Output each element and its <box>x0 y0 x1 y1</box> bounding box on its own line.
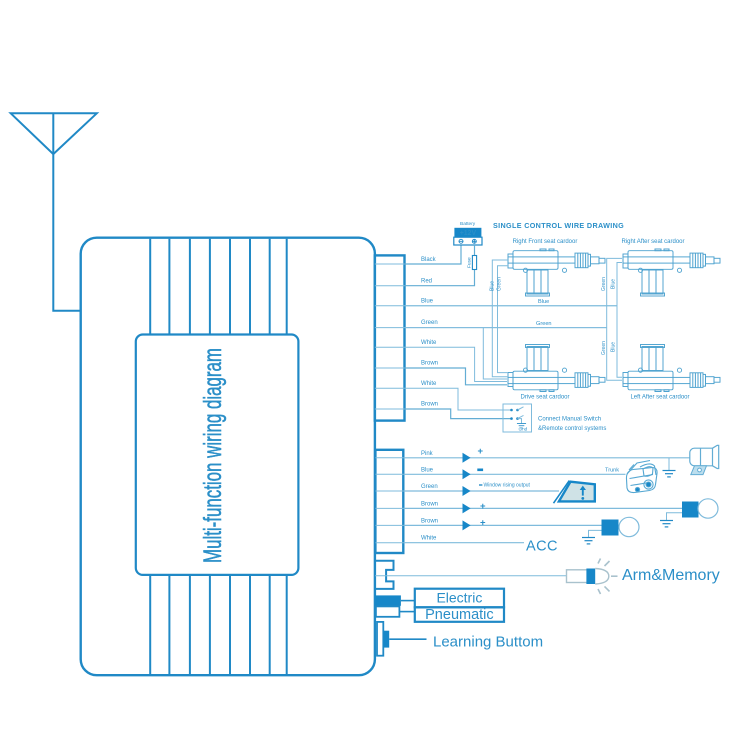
svg-text:Trunk: Trunk <box>605 468 619 474</box>
svg-text:Green: Green <box>421 484 438 490</box>
svg-text:Electric: Electric <box>436 590 482 606</box>
svg-text:Brown: Brown <box>421 502 438 508</box>
svg-text:Right Front seat cardoor: Right Front seat cardoor <box>513 239 578 245</box>
svg-text:Green: Green <box>536 321 552 327</box>
svg-text:Gnd: Gnd <box>519 426 528 431</box>
svg-text:Brown: Brown <box>421 361 438 367</box>
svg-text:Right After seat cardoor: Right After seat cardoor <box>621 239 684 245</box>
svg-text:Left After seat cardoor: Left After seat cardoor <box>630 395 689 401</box>
svg-text:Pneumatic: Pneumatic <box>425 607 494 623</box>
svg-text:Multi-function wiring diagram: Multi-function wiring diagram <box>199 348 227 563</box>
svg-text:Green: Green <box>497 277 503 291</box>
svg-text:Drive seat cardoor: Drive seat cardoor <box>520 395 569 401</box>
svg-text:+: + <box>480 518 486 529</box>
svg-text:Brown: Brown <box>421 402 438 408</box>
svg-text:+: + <box>480 501 486 512</box>
svg-text:Battery: Battery <box>460 221 476 227</box>
svg-text:Pink: Pink <box>421 451 434 457</box>
svg-text:SINGLE CONTROL WIRE DRAWING: SINGLE CONTROL WIRE DRAWING <box>493 221 624 230</box>
svg-text:Brown: Brown <box>421 519 438 525</box>
svg-text:Blue: Blue <box>421 468 434 474</box>
svg-text:Red: Red <box>421 279 432 285</box>
svg-text:White: White <box>421 340 437 346</box>
svg-text:Black: Black <box>421 257 437 263</box>
svg-text:+12V: +12V <box>460 230 477 237</box>
svg-text:Blue: Blue <box>611 279 617 289</box>
svg-text:+: + <box>478 446 484 457</box>
svg-text:Fuse: Fuse <box>466 257 472 268</box>
svg-text:ACC: ACC <box>526 539 558 555</box>
svg-text:Green: Green <box>421 320 438 326</box>
svg-text:Blue: Blue <box>538 299 549 305</box>
svg-text:Connect Manual Switch: Connect Manual Switch <box>538 417 601 423</box>
svg-text:Blue: Blue <box>421 299 434 305</box>
svg-text:Blue: Blue <box>611 342 617 352</box>
svg-text:White: White <box>421 536 437 542</box>
svg-text:Window rising output: Window rising output <box>484 483 531 489</box>
svg-text:Green: Green <box>601 277 607 291</box>
svg-text:Blue: Blue <box>490 281 496 291</box>
svg-text:White: White <box>421 381 437 387</box>
svg-text:Arm&Memory: Arm&Memory <box>622 567 720 584</box>
svg-text:Learning Buttom: Learning Buttom <box>433 634 543 651</box>
svg-text:&Remote control systems: &Remote control systems <box>538 426 606 432</box>
svg-text:Green: Green <box>601 341 607 355</box>
